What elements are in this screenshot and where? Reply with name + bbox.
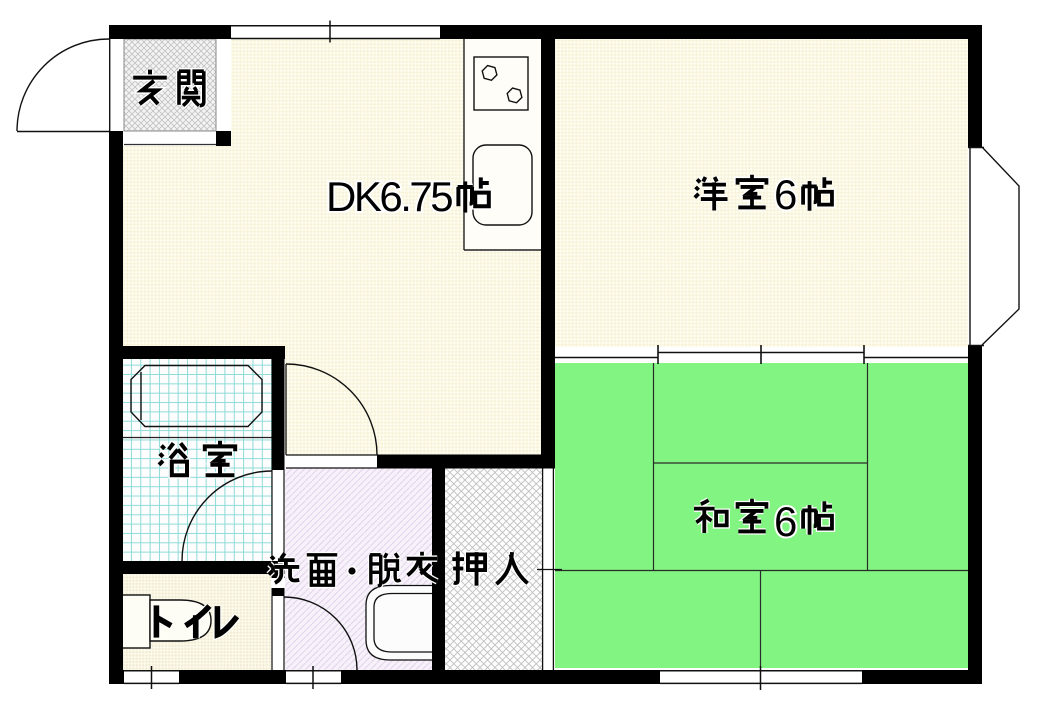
svg-text:DK6.75: DK6.75 (326, 173, 452, 220)
svg-text:6: 6 (774, 171, 797, 218)
svg-text:6: 6 (774, 498, 797, 545)
